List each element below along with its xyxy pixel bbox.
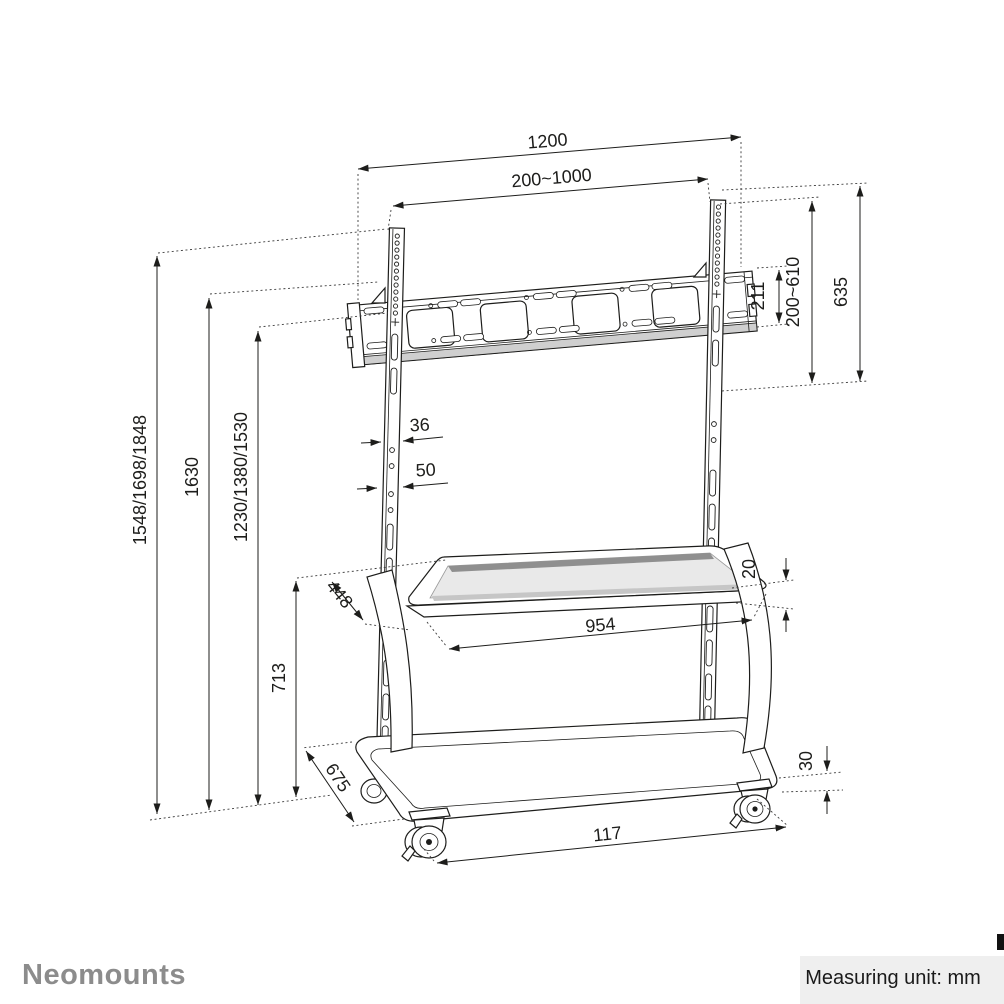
edge-mark	[997, 934, 1004, 950]
dim-height-to-bar-bottom: 1230/1380/1530	[231, 412, 251, 542]
dim-column-front-depth: 36	[409, 414, 430, 435]
dim-column-side-depth: 50	[415, 459, 436, 480]
base-frame	[356, 718, 777, 822]
dim-base-width: 117	[592, 823, 623, 846]
technical-drawing: 1200 200~1000 211 200~610 635 1548/1698/…	[0, 0, 1004, 1004]
dim-bracket-total-height: 635	[831, 277, 851, 307]
right-hook	[694, 263, 706, 277]
dim-height-to-bar-top: 1630	[182, 457, 202, 497]
dim-bracket-plate-height: 211	[748, 282, 768, 311]
dim-shelf-width: 954	[585, 614, 617, 637]
brand-logo: Neomounts	[22, 959, 186, 991]
dim-shelf-thickness: 20	[739, 559, 759, 579]
dim-vesa-width-range: 200~1000	[511, 165, 593, 192]
dim-total-width: 1200	[527, 129, 569, 152]
dim-base-depth: 675	[321, 760, 354, 796]
measuring-unit-label: Measuring unit: mm	[805, 967, 981, 989]
dim-base-tube-height: 30	[796, 751, 816, 771]
dim-vesa-height-range: 200~610	[783, 257, 803, 328]
screenshot-canvas: 1200 200~1000 211 200~610 635 1548/1698/…	[0, 0, 1004, 1004]
left-hook	[372, 288, 385, 303]
dim-total-height-options: 1548/1698/1848	[130, 415, 150, 545]
mount-bar	[344, 263, 758, 368]
dim-shelf-height: 713	[269, 663, 289, 693]
